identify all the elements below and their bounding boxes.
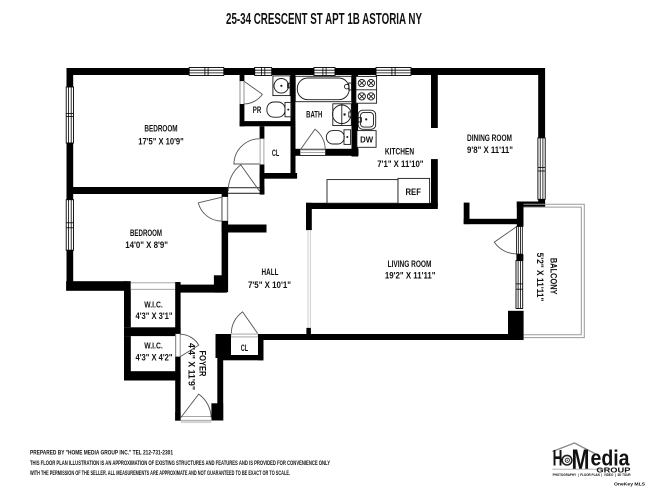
svg-text:W.I.C.: W.I.C. [144, 300, 163, 310]
svg-text:M: M [572, 444, 590, 476]
svg-text:17'5" X 10'9": 17'5" X 10'9" [138, 136, 184, 147]
svg-text:BATH: BATH [306, 109, 322, 119]
svg-text:FOYER: FOYER [197, 351, 207, 377]
svg-text:14'0" X 8'9": 14'0" X 8'9" [125, 240, 168, 251]
svg-text:7'5" X 10'1": 7'5" X 10'1" [248, 280, 291, 291]
svg-text:7'1" X 11'10": 7'1" X 11'10" [377, 159, 423, 170]
svg-text:PHOTOGRAPHY | FLOOR PLAN |: PHOTOGRAPHY | FLOOR PLAN | VIDEO | 3D TO… [553, 473, 631, 477]
svg-text:REF: REF [406, 187, 422, 197]
svg-text:OneKey MLS: OneKey MLS [614, 481, 645, 486]
svg-text:4'3" X 3'1": 4'3" X 3'1" [136, 311, 173, 321]
svg-text:25-34 CRESCENT ST APT 1B ASTOR: 25-34 CRESCENT ST APT 1B ASTORIA NY [226, 11, 422, 28]
svg-text:BEDROOM: BEDROOM [144, 124, 177, 134]
svg-text:THIS FLOOR PLAN ILLUSTRATION I: THIS FLOOR PLAN ILLUSTRATION IS AN APPRO… [30, 461, 330, 467]
svg-text:PREPARED BY "HOME MEDIA GROUP: PREPARED BY "HOME MEDIA GROUP INC." TEL … [30, 451, 174, 457]
svg-text:W.I.C.: W.I.C. [144, 340, 163, 350]
svg-text:LIVING ROOM: LIVING ROOM [388, 259, 432, 269]
svg-text:CL: CL [241, 343, 249, 353]
svg-text:H: H [553, 446, 563, 471]
svg-text:PR: PR [253, 105, 262, 115]
svg-text:DINING ROOM: DINING ROOM [467, 133, 512, 143]
svg-text:4'4" X 11'9": 4'4" X 11'9" [187, 343, 197, 390]
svg-text:5'2" X 11'11": 5'2" X 11'11" [535, 253, 545, 302]
svg-text:CL: CL [272, 148, 280, 158]
svg-text:HALL: HALL [262, 267, 279, 277]
svg-text:BEDROOM: BEDROOM [130, 228, 162, 238]
svg-text:9'8" X 11'11": 9'8" X 11'11" [467, 145, 513, 156]
svg-text:WITH THE PERMISSION OF THE SEL: WITH THE PERMISSION OF THE SELLER. ALL M… [30, 471, 290, 477]
svg-text:KITCHEN: KITCHEN [385, 146, 414, 156]
svg-text:DW: DW [360, 135, 374, 145]
svg-text:4'3" X 4'2": 4'3" X 4'2" [136, 352, 173, 362]
svg-text:19'2" X 11'11": 19'2" X 11'11" [385, 270, 436, 281]
svg-text:BALCONY: BALCONY [549, 258, 559, 295]
